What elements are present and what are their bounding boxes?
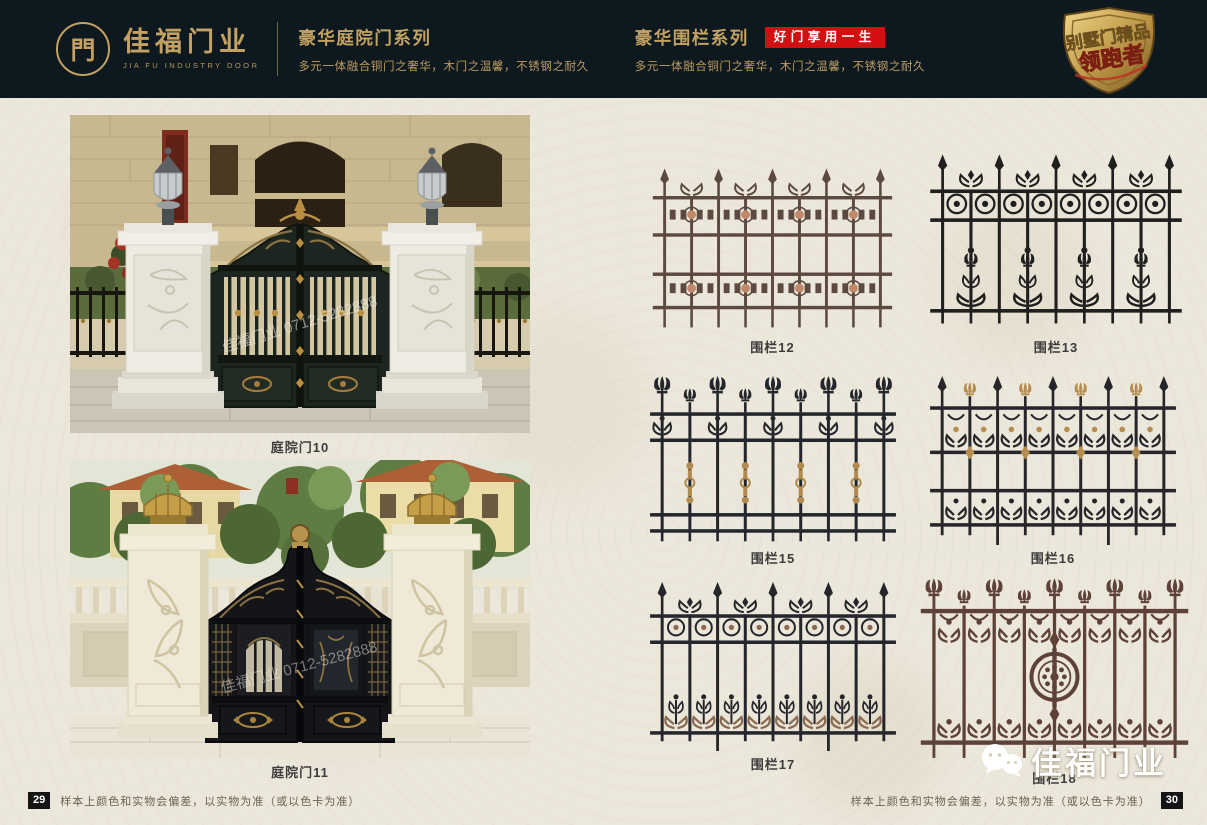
fence-image: [912, 576, 1197, 765]
page-number-left: 29: [28, 792, 50, 809]
brand-logo: 門 佳福门业 JIA FU INDUSTRY DOOR: [56, 22, 259, 76]
fence-product-15: 围栏15: [642, 372, 904, 564]
gold-shield-emblem: 别墅门精品 领跑者: [1033, 3, 1185, 97]
series-right-title: 豪华围栏系列: [635, 25, 749, 50]
fence-image: [922, 372, 1184, 545]
slogan-badge: 好门享用一生: [765, 27, 885, 48]
brand-text: 佳福门业 JIA FU INDUSTRY DOOR: [123, 28, 259, 69]
gate-caption: 庭院门10: [70, 437, 530, 456]
fence-product-16: 围栏16: [922, 372, 1184, 564]
footer-left: 29 样本上颜色和实物会偏差，以实物为准（或以色卡为准）: [28, 792, 360, 809]
fence-image: [642, 578, 904, 751]
fence-product-13: 围栏13: [922, 148, 1190, 356]
brand-watermark: 佳福门业: [980, 738, 1167, 783]
courtyard-gate-photo-10: 佳福门业 0712-5282888: [70, 115, 530, 433]
fence-image: [642, 372, 904, 545]
footer-right: 样本上颜色和实物会偏差，以实物为准（或以色卡为准） 30: [851, 792, 1183, 809]
series-left: 豪华庭院门系列 多元一体融合铜门之奢华，木门之温馨，不锈钢之耐久: [298, 25, 588, 74]
gate-caption: 庭院门11: [70, 762, 530, 781]
color-disclaimer-note: 样本上颜色和实物会偏差，以实物为准（或以色卡为准）: [60, 793, 360, 809]
shield-icon: 别墅门精品 领跑者: [1033, 3, 1185, 97]
brand-name-en: JIA FU INDUSTRY DOOR: [123, 61, 259, 70]
brand-name: 佳福门业: [123, 28, 259, 56]
catalog-page: 門 佳福门业 JIA FU INDUSTRY DOOR 豪华庭院门系列 多元一体…: [0, 0, 1207, 825]
series-right-subtitle: 多元一体融合铜门之奢华，木门之温馨，不锈钢之耐久: [635, 58, 925, 74]
door-glyph-icon: 門: [56, 22, 110, 76]
fence-caption: 围栏16: [1031, 548, 1075, 567]
fence-caption: 围栏15: [751, 548, 795, 567]
series-left-subtitle: 多元一体融合铜门之奢华，木门之温馨，不锈钢之耐久: [298, 58, 588, 74]
fence-product-17: 围栏17: [642, 578, 904, 768]
header-bar: 門 佳福门业 JIA FU INDUSTRY DOOR 豪华庭院门系列 多元一体…: [0, 0, 1207, 98]
fence-image: [922, 148, 1190, 334]
brand-watermark-text: 佳福门业: [1031, 738, 1167, 783]
fence-product-12: 围栏12: [645, 160, 900, 356]
header-divider: [277, 22, 278, 76]
fence-caption: 围栏17: [751, 754, 795, 773]
fence-caption: 围栏12: [750, 337, 794, 356]
page-number-right: 30: [1161, 792, 1183, 809]
fence-caption: 围栏13: [1034, 337, 1078, 356]
fence-image: [645, 160, 900, 334]
wechat-icon: [980, 743, 1024, 779]
color-disclaimer-note: 样本上颜色和实物会偏差，以实物为准（或以色卡为准）: [851, 793, 1151, 809]
series-left-title: 豪华庭院门系列: [298, 25, 431, 50]
courtyard-gate-photo-11: 佳福门业 0712-5282888: [70, 460, 530, 758]
series-right: 豪华围栏系列 好门享用一生 多元一体融合铜门之奢华，木门之温馨，不锈钢之耐久: [635, 25, 925, 74]
